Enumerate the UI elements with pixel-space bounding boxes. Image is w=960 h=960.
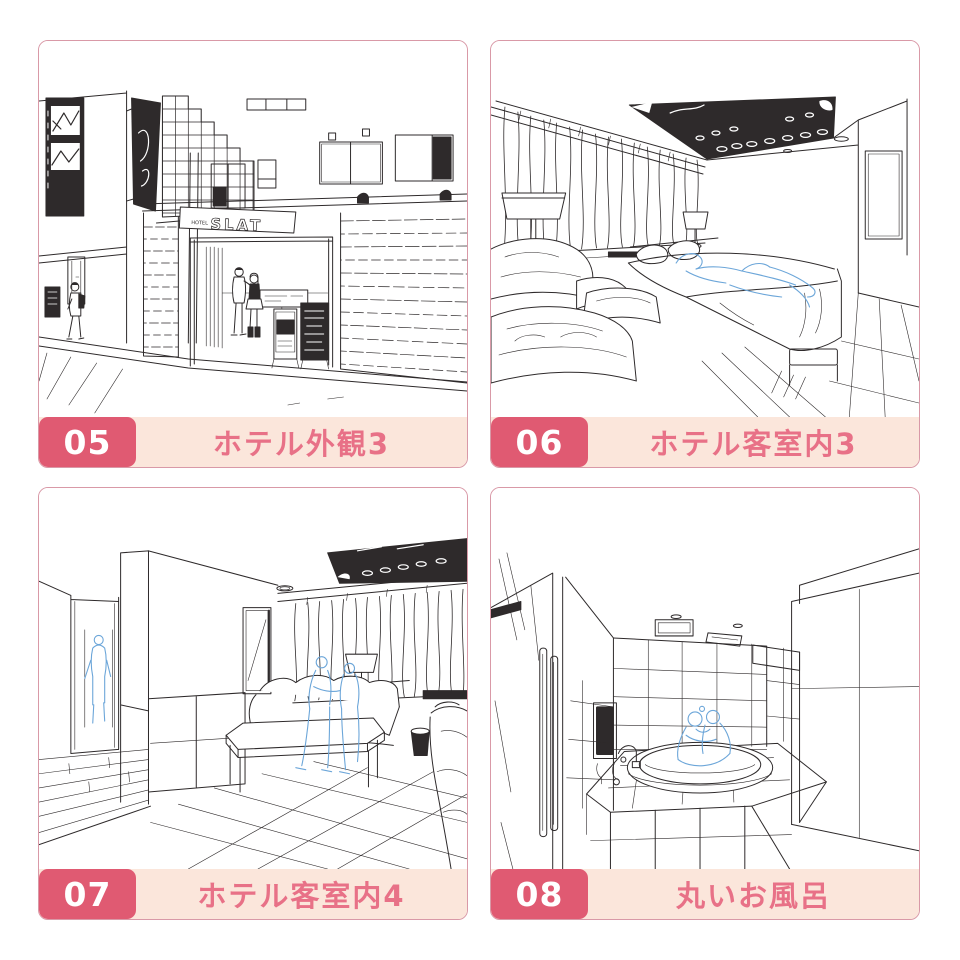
caption-bar: 06 ホテル客室内3 <box>491 417 919 467</box>
card-round-bath: 08 丸いお風呂 <box>490 487 920 920</box>
number-badge: 06 <box>491 417 588 467</box>
hotel-guest-room-3-illustration <box>491 41 919 417</box>
caption-label: ホテル客室内3 <box>588 417 919 467</box>
illustration-catalog-page: HOTEL SLAT 05 ホテル外観3 <box>0 0 960 960</box>
number-badge: 08 <box>491 869 588 919</box>
caption-bar: 05 ホテル外観3 <box>39 417 467 467</box>
card-hotel-guest-room-3: 06 ホテル客室内3 <box>490 40 920 468</box>
caption-bar: 07 ホテル客室内4 <box>39 869 467 919</box>
card-hotel-guest-room-4: 07 ホテル客室内4 <box>38 487 468 920</box>
caption-label: ホテル客室内4 <box>136 869 467 919</box>
card-hotel-exterior: HOTEL SLAT 05 ホテル外観3 <box>38 40 468 468</box>
hotel-guest-room-4-illustration <box>39 488 467 869</box>
round-bath-illustration <box>491 488 919 869</box>
hotel-sign-text: SLAT <box>210 215 263 235</box>
hotel-exterior-illustration: HOTEL SLAT <box>39 41 467 417</box>
caption-label: 丸いお風呂 <box>588 869 919 919</box>
number-badge: 05 <box>39 417 136 467</box>
hotel-sign-prefix: HOTEL <box>191 220 208 227</box>
caption-label: ホテル外観3 <box>136 417 467 467</box>
number-badge: 07 <box>39 869 136 919</box>
caption-bar: 08 丸いお風呂 <box>491 869 919 919</box>
